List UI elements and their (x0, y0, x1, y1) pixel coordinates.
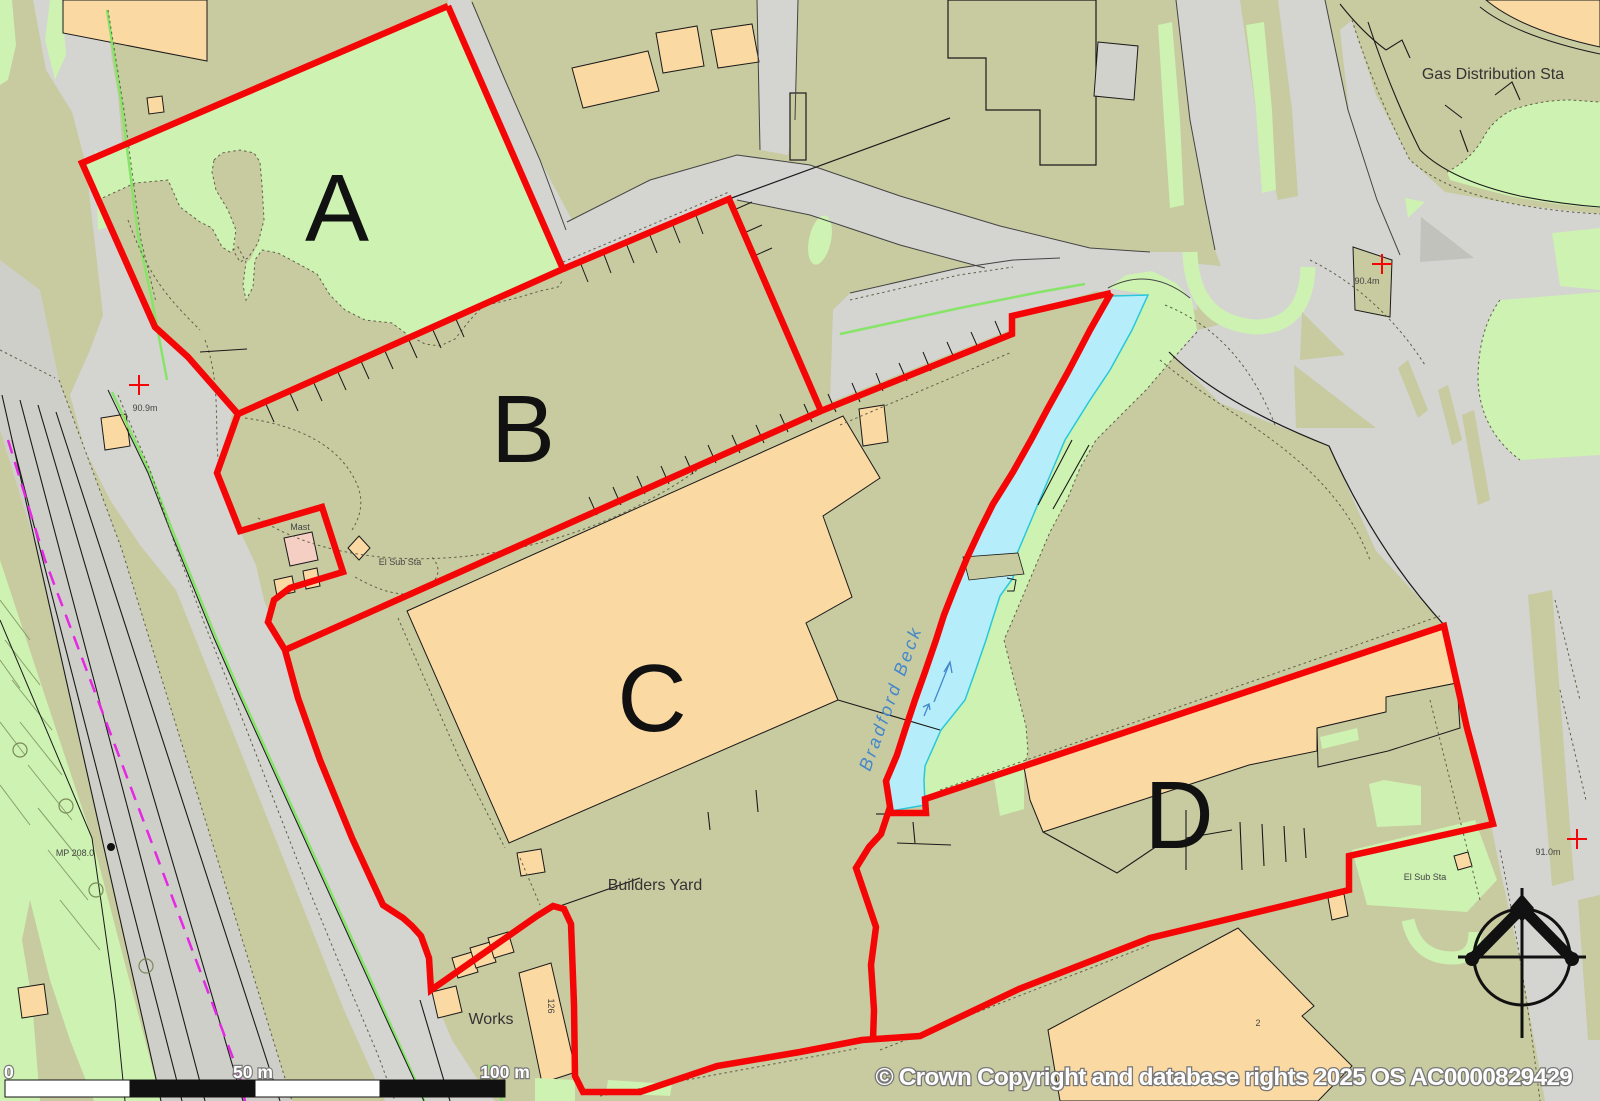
svg-text:Mast: Mast (290, 522, 310, 532)
svg-text:100 m: 100 m (480, 1062, 530, 1082)
svg-text:90.4m: 90.4m (1354, 276, 1379, 286)
svg-text:B: B (491, 376, 555, 483)
svg-text:Works: Works (468, 1011, 513, 1028)
svg-text:91.0m: 91.0m (1535, 847, 1560, 857)
svg-text:C: C (617, 645, 686, 752)
svg-text:126: 126 (546, 998, 556, 1013)
svg-text:0: 0 (4, 1062, 14, 1082)
svg-text:© Crown Copyright and database: © Crown Copyright and database rights 20… (876, 1064, 1573, 1091)
svg-text:Gas Distribution Sta: Gas Distribution Sta (1422, 66, 1564, 83)
svg-text:90.9m: 90.9m (132, 403, 157, 413)
svg-text:A: A (305, 155, 369, 262)
svg-text:50 m: 50 m (233, 1062, 273, 1082)
svg-text:El Sub Sta: El Sub Sta (1404, 872, 1447, 882)
svg-text:El Sub Sta: El Sub Sta (379, 557, 422, 567)
svg-text:D: D (1144, 762, 1213, 869)
svg-text:MP 208.0: MP 208.0 (56, 848, 94, 858)
svg-text:2: 2 (1255, 1018, 1260, 1028)
svg-text:Builders Yard: Builders Yard (608, 877, 703, 894)
